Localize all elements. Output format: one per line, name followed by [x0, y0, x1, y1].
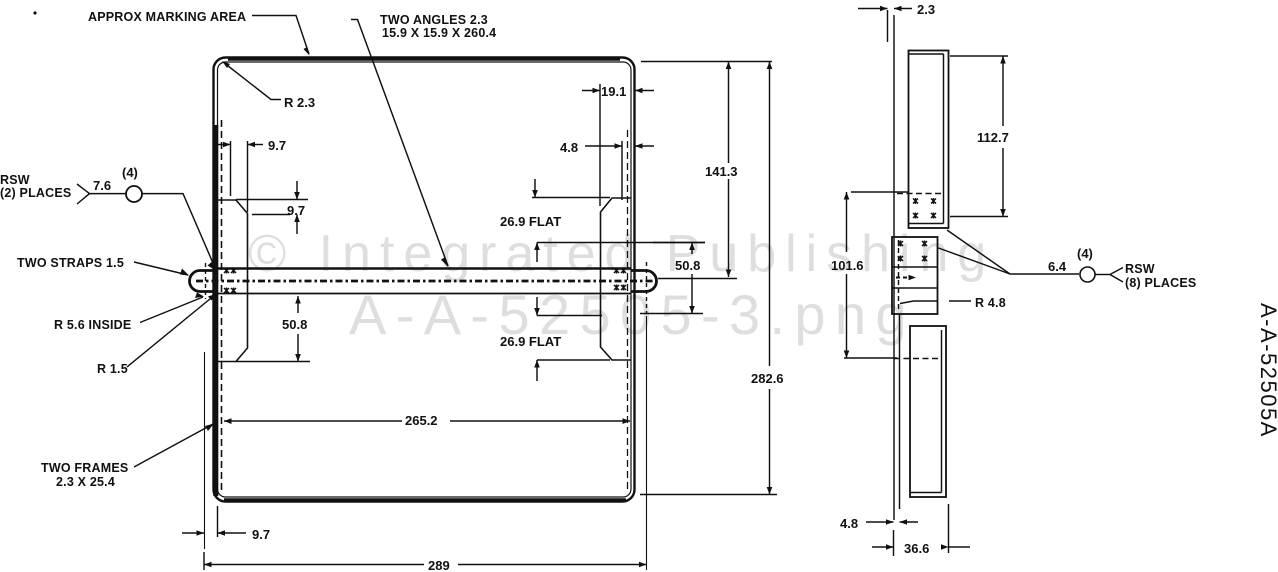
svg-text:(8) PLACES: (8) PLACES [1125, 276, 1196, 290]
svg-text:R 1.5: R 1.5 [97, 362, 128, 376]
svg-text:4.8: 4.8 [560, 140, 578, 155]
svg-text:RSW: RSW [1125, 262, 1155, 276]
svg-text:50.8: 50.8 [282, 317, 307, 332]
svg-text:R 5.6 INSIDE: R 5.6 INSIDE [54, 318, 131, 332]
svg-text:6.4: 6.4 [1048, 259, 1067, 274]
svg-text:9.7: 9.7 [268, 138, 286, 153]
svg-text:TWO FRAMES: TWO FRAMES [41, 461, 128, 475]
svg-text:2.3 X 25.4: 2.3 X 25.4 [56, 475, 115, 489]
svg-text:R 4.8: R 4.8 [975, 296, 1006, 310]
svg-text:50.8: 50.8 [675, 258, 700, 273]
svg-text:4.8: 4.8 [840, 516, 858, 531]
svg-text:36.6: 36.6 [904, 541, 929, 556]
svg-text:A-A-52505A: A-A-52505A [1256, 303, 1278, 438]
svg-text:APPROX MARKING AREA: APPROX MARKING AREA [88, 10, 246, 24]
svg-text:9.7: 9.7 [287, 203, 305, 218]
svg-text:7.6: 7.6 [93, 178, 111, 193]
svg-text:282.6: 282.6 [751, 371, 784, 386]
svg-text:R 2.3: R 2.3 [284, 95, 315, 110]
svg-text:112.7: 112.7 [977, 130, 1009, 145]
svg-text:9.7: 9.7 [252, 527, 270, 542]
svg-text:289: 289 [428, 558, 450, 572]
svg-text:TWO STRAPS 1.5: TWO STRAPS 1.5 [17, 256, 124, 270]
svg-text:19.1: 19.1 [601, 84, 626, 99]
svg-text:15.9 X 15.9 X 260.4: 15.9 X 15.9 X 260.4 [382, 26, 496, 40]
svg-text:(4): (4) [1077, 246, 1093, 261]
svg-text:© Integrated Publishing: © Integrated Publishing [248, 225, 995, 283]
svg-text:26.9 FLAT: 26.9 FLAT [500, 334, 561, 349]
svg-text:2.3: 2.3 [917, 2, 935, 17]
svg-text:(4): (4) [122, 165, 138, 180]
svg-text:101.6: 101.6 [831, 258, 864, 273]
svg-text:(2) PLACES: (2) PLACES [0, 186, 71, 200]
svg-text:265.2: 265.2 [405, 413, 438, 428]
svg-text:TWO ANGLES 2.3: TWO ANGLES 2.3 [380, 13, 488, 27]
svg-text:141.3: 141.3 [705, 164, 738, 179]
svg-text:RSW: RSW [0, 173, 30, 187]
svg-text:26.9 FLAT: 26.9 FLAT [500, 214, 561, 229]
